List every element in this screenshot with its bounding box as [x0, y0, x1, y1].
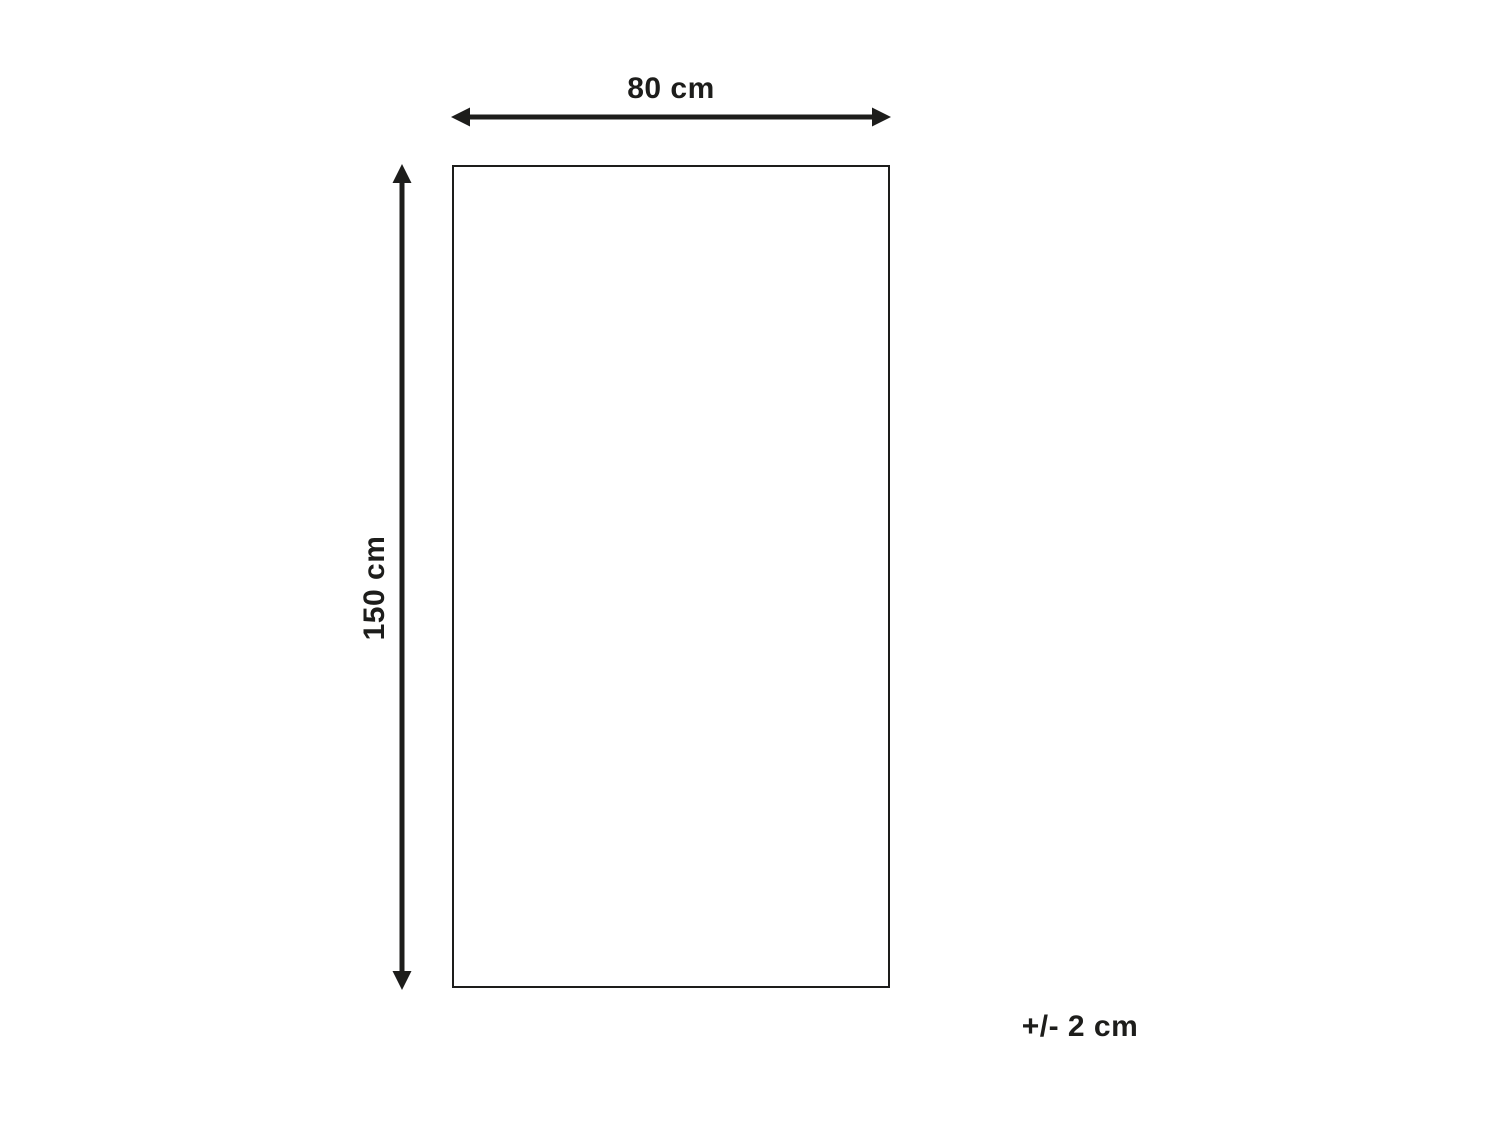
- width-arrowhead-left: [451, 108, 470, 127]
- width-dimension-arrow-icon: [451, 103, 891, 131]
- width-arrowhead-right: [872, 108, 891, 127]
- height-dimension-arrow-icon: [388, 164, 416, 990]
- height-dimension-label: 150 cm: [358, 488, 392, 688]
- tolerance-label: +/- 2 cm: [1000, 1010, 1160, 1044]
- width-dimension-label: 80 cm: [451, 72, 891, 106]
- product-outline: [452, 165, 890, 988]
- height-arrowhead-bottom: [393, 971, 412, 990]
- height-arrowhead-top: [393, 164, 412, 183]
- dimension-diagram: 80 cm 150 cm +/- 2 cm: [0, 0, 1500, 1125]
